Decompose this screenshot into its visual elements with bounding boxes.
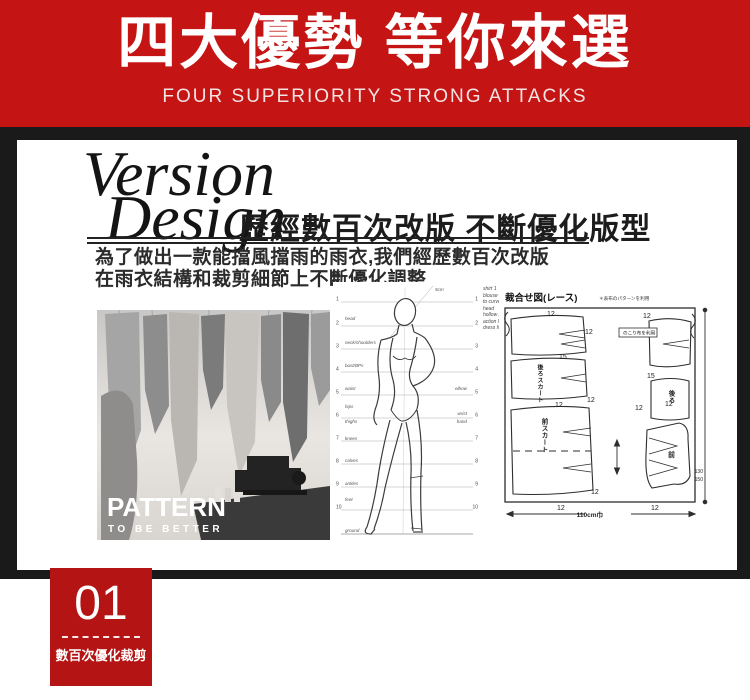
annotation-text: 7 (336, 436, 339, 442)
annotation-text: calves (345, 458, 359, 463)
annotation-text: 4 (475, 367, 478, 373)
diagram-boxed-note: のこり布を利用 (623, 330, 656, 337)
annotation-text: 8 (336, 459, 339, 465)
promo-page: 四大優勢 等你來選 FOUR SUPERIORITY STRONG ATTACK… (0, 0, 750, 700)
content-frame: Version Design 歷經數百次改版 不斷優化版型 為了做出一款能擋風擋… (0, 127, 750, 579)
annotation-text: 12 (651, 505, 659, 512)
badge-dashed-divider (62, 636, 140, 638)
description-line-1: 為了做出一款能擋風擋雨的雨衣,我們經歷數百次改版 (95, 247, 549, 269)
annotation-text: head (345, 316, 356, 321)
annotation-text: 9 (336, 482, 339, 488)
pattern-diagram: 裁合せ図(レース) ＊表布のパターンを利用 (499, 288, 737, 538)
annotation-text: 10 (472, 505, 478, 511)
annotation-text: 3 (475, 344, 478, 350)
annotation-text: knees (345, 436, 358, 441)
annotation-text: 2 (336, 321, 339, 327)
annotation-text: 1 (336, 297, 339, 303)
annotation-text: 12 (643, 313, 651, 320)
annotation-text: 3 (336, 344, 339, 350)
label-front-skirt: 前スカート (539, 418, 547, 453)
annotation-text: 10 (336, 505, 342, 511)
annotation-text: 12 (591, 489, 599, 496)
pattern-diagram-svg: 裁合せ図(レース) ＊表布のパターンを利用 (499, 288, 737, 538)
description-line-2: 在雨衣結構和裁剪細節上不斷優化調整 (95, 269, 549, 291)
annotation-text: 7 (475, 436, 478, 442)
croquis-figure: 5cm (333, 282, 481, 545)
workshop-photo: PATTERN TO BE BETTER (97, 310, 330, 540)
annotation-text: 12 (585, 329, 593, 336)
annotation-text: 15 (647, 373, 655, 380)
top-banner: 四大優勢 等你來選 FOUR SUPERIORITY STRONG ATTACK… (0, 0, 750, 127)
annotation-text: 1 (475, 297, 478, 303)
annotation-text: hips (345, 404, 354, 409)
annotation-text: 12 (555, 402, 563, 409)
annotation-text: ground (345, 528, 360, 533)
annotation-text: hand (457, 419, 468, 424)
croquis-top-note: 5cm (435, 287, 444, 292)
diagram-title: 裁合せ図(レース) (505, 292, 577, 304)
annotation-text: 15 (559, 354, 567, 361)
section-description: 為了做出一款能擋風擋雨的雨衣,我們經歷數百次改版 在雨衣結構和裁剪細節上不斷優化… (95, 247, 549, 291)
badge-caption: 數百次優化裁剪 (50, 645, 152, 664)
headline-underline (87, 237, 589, 244)
annotation-text: 12 (547, 311, 555, 318)
photo-overlay-subtitle: TO BE BETTER (108, 524, 223, 535)
diagram-width-label: 110cm巾 (577, 510, 603, 519)
annotation-text: 9 (475, 482, 478, 488)
annotation-text: feet (345, 497, 353, 502)
annotation-text: 5 (475, 390, 478, 396)
annotation-text: neck/shoulders (345, 340, 377, 345)
annotation-text: thighs (345, 419, 358, 424)
croquis-svg: 5cm (333, 282, 481, 545)
annotation-text: 2 (475, 321, 478, 327)
banner-subtitle: FOUR SUPERIORITY STRONG ATTACKS (0, 86, 750, 108)
diagram-title-note: ＊表布のパターンを利用 (599, 295, 650, 302)
number-badge: 01 數百次優化裁剪 (50, 568, 152, 686)
annotation-text: bust/BPs (345, 363, 364, 368)
workshop-photo-illustration: PATTERN TO BE BETTER (97, 310, 330, 540)
content-panel: Version Design 歷經數百次改版 不斷優化版型 為了做出一款能擋風擋… (17, 140, 737, 570)
annotation-text: elbow (455, 386, 468, 391)
banner-title: 四大優勢 等你來選 (0, 0, 750, 75)
annotation-text: 4 (336, 367, 339, 373)
badge-number: 01 (50, 568, 152, 631)
annotation-text: 8 (475, 459, 478, 465)
label-front: 前 (668, 450, 675, 460)
annotation-text: 6 (336, 413, 339, 419)
annotation-text: 5 (336, 390, 339, 396)
annotation-text: 12 (557, 505, 565, 512)
photo-overlay-title: PATTERN (107, 492, 226, 522)
annotation-text: ankles (345, 481, 359, 486)
label-back-skirt: 後ろスカート (535, 364, 542, 403)
label-back: 後ろ (666, 390, 674, 404)
annotation-text: 12 (587, 397, 595, 404)
diagram-height-label-150: 150 (695, 477, 704, 483)
annotation-text: 12 (635, 405, 643, 412)
annotation-text: waist (345, 386, 356, 391)
annotation-text: wrist (458, 411, 468, 416)
annotation-text: 6 (475, 413, 478, 419)
diagram-height-label-130: 130 (695, 469, 704, 475)
